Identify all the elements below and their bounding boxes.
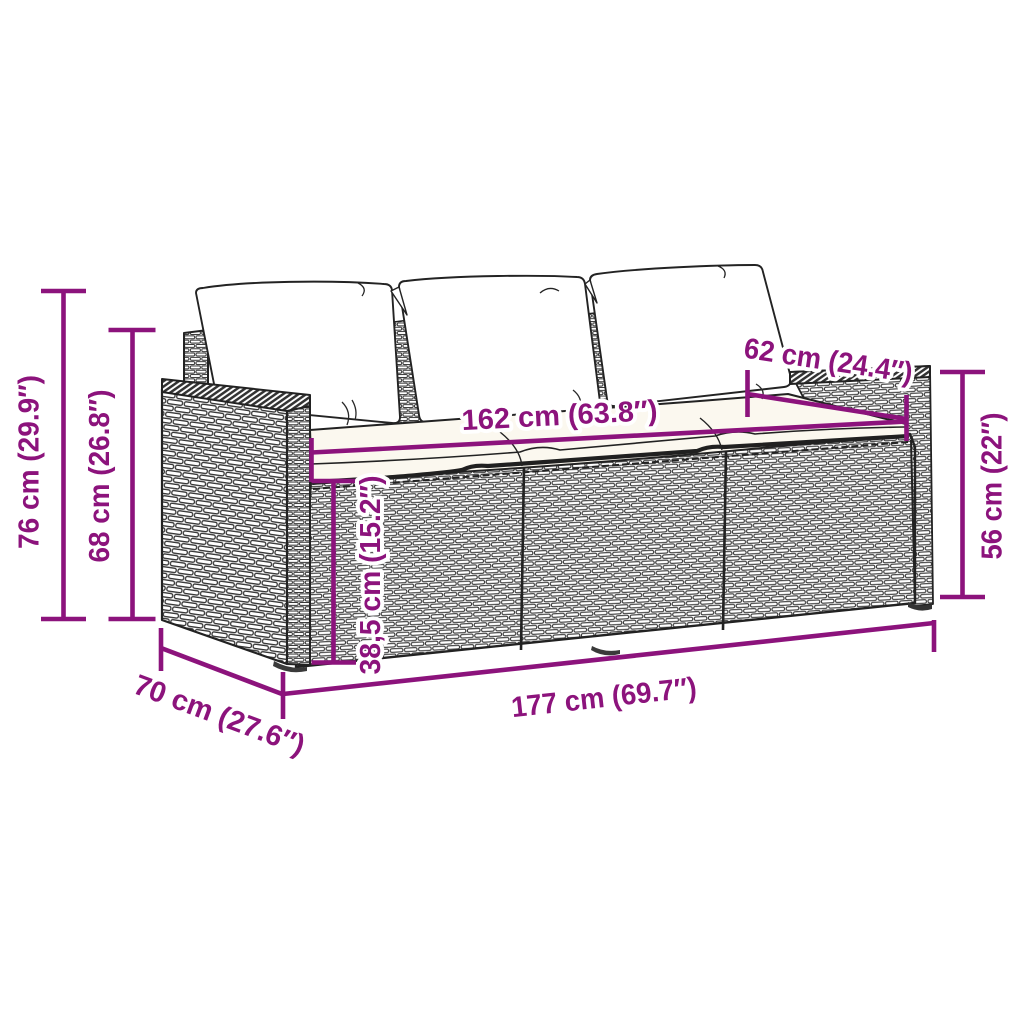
svg-text:56 cm (22″): 56 cm (22″) bbox=[977, 413, 1009, 560]
svg-text:76 cm (29.9″): 76 cm (29.9″) bbox=[14, 375, 46, 549]
svg-text:68 cm (26.8″): 68 cm (26.8″) bbox=[84, 390, 116, 563]
svg-text:38,5 cm (15.2″): 38,5 cm (15.2″) bbox=[355, 476, 387, 675]
